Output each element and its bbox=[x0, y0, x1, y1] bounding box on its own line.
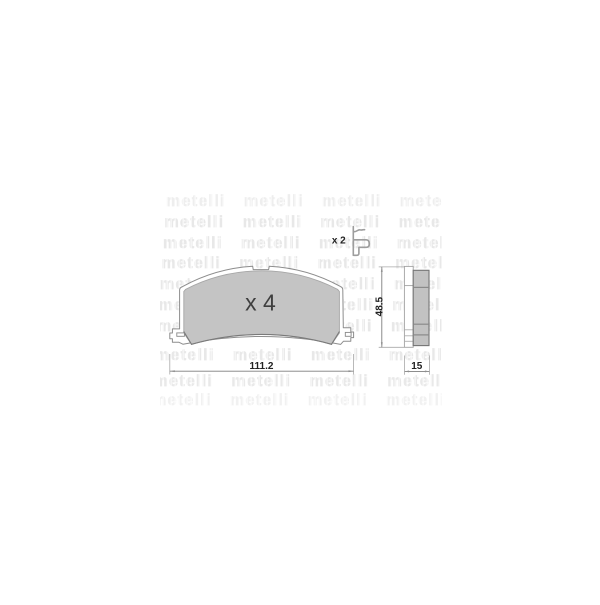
svg-text:48.5: 48.5 bbox=[374, 296, 385, 316]
svg-text:x 2: x 2 bbox=[332, 236, 346, 247]
svg-text:15: 15 bbox=[411, 361, 423, 372]
svg-text:111.2: 111.2 bbox=[250, 361, 274, 372]
svg-text:x 4: x 4 bbox=[245, 290, 276, 316]
